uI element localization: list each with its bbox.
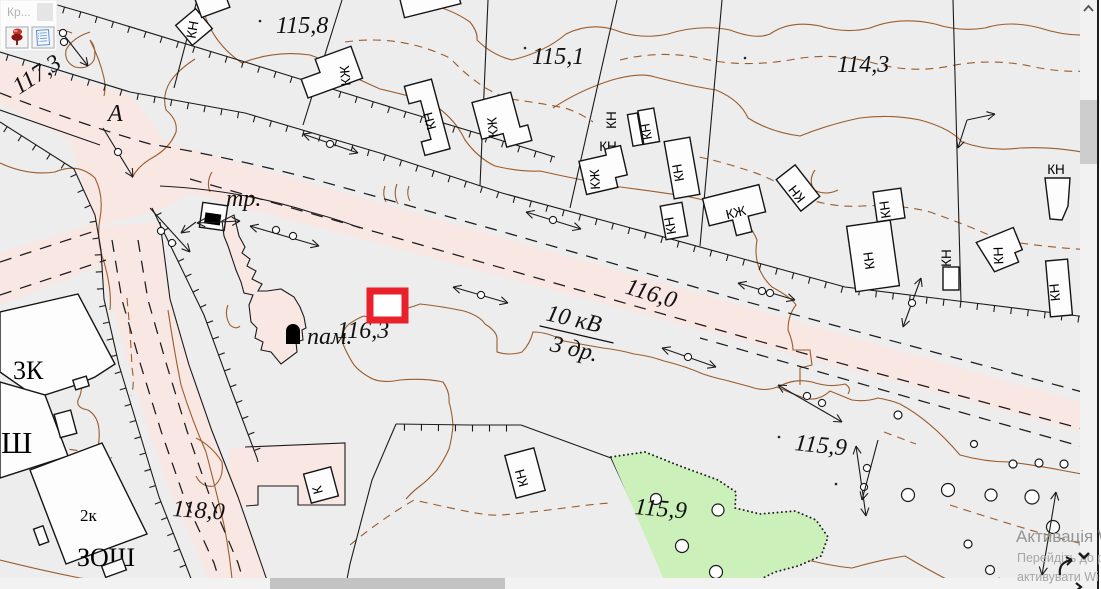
svg-text:Ш: Ш	[1, 425, 32, 460]
svg-text:115,8: 115,8	[276, 13, 328, 39]
svg-text:КН: КН	[991, 246, 1007, 264]
svg-text:КН: КН	[669, 163, 687, 183]
svg-text:КН: КН	[604, 111, 619, 129]
svg-text:2к: 2к	[80, 506, 98, 525]
svg-text:А: А	[106, 101, 123, 127]
svg-text:активувати Wі: активувати Wі	[1017, 570, 1099, 584]
svg-text:Активація W: Активація W	[1016, 527, 1101, 546]
svg-text:115,9: 115,9	[633, 494, 687, 524]
svg-text:114,3: 114,3	[837, 52, 889, 78]
svg-text:КЖ: КЖ	[337, 64, 354, 86]
svg-text:КН: КН	[184, 20, 202, 40]
svg-text:КН: КН	[661, 216, 679, 236]
svg-text:115,1: 115,1	[532, 44, 584, 70]
svg-text:115,9: 115,9	[793, 430, 848, 461]
svg-text:КН: КН	[860, 251, 877, 271]
svg-text:КН: КН	[638, 122, 655, 140]
svg-text:КН: КН	[1047, 283, 1063, 302]
svg-text:тр.: тр.	[226, 186, 261, 212]
svg-text:118,0: 118,0	[172, 496, 226, 526]
svg-text:КЖ: КЖ	[484, 116, 501, 138]
svg-text:КН: КН	[1047, 162, 1065, 177]
svg-text:3К: 3К	[13, 356, 44, 385]
svg-text:КН: КН	[876, 200, 893, 220]
svg-text:КЖ: КЖ	[587, 168, 603, 190]
svg-text:Кр...: Кр...	[7, 5, 31, 19]
svg-text:КН: КН	[939, 249, 954, 267]
